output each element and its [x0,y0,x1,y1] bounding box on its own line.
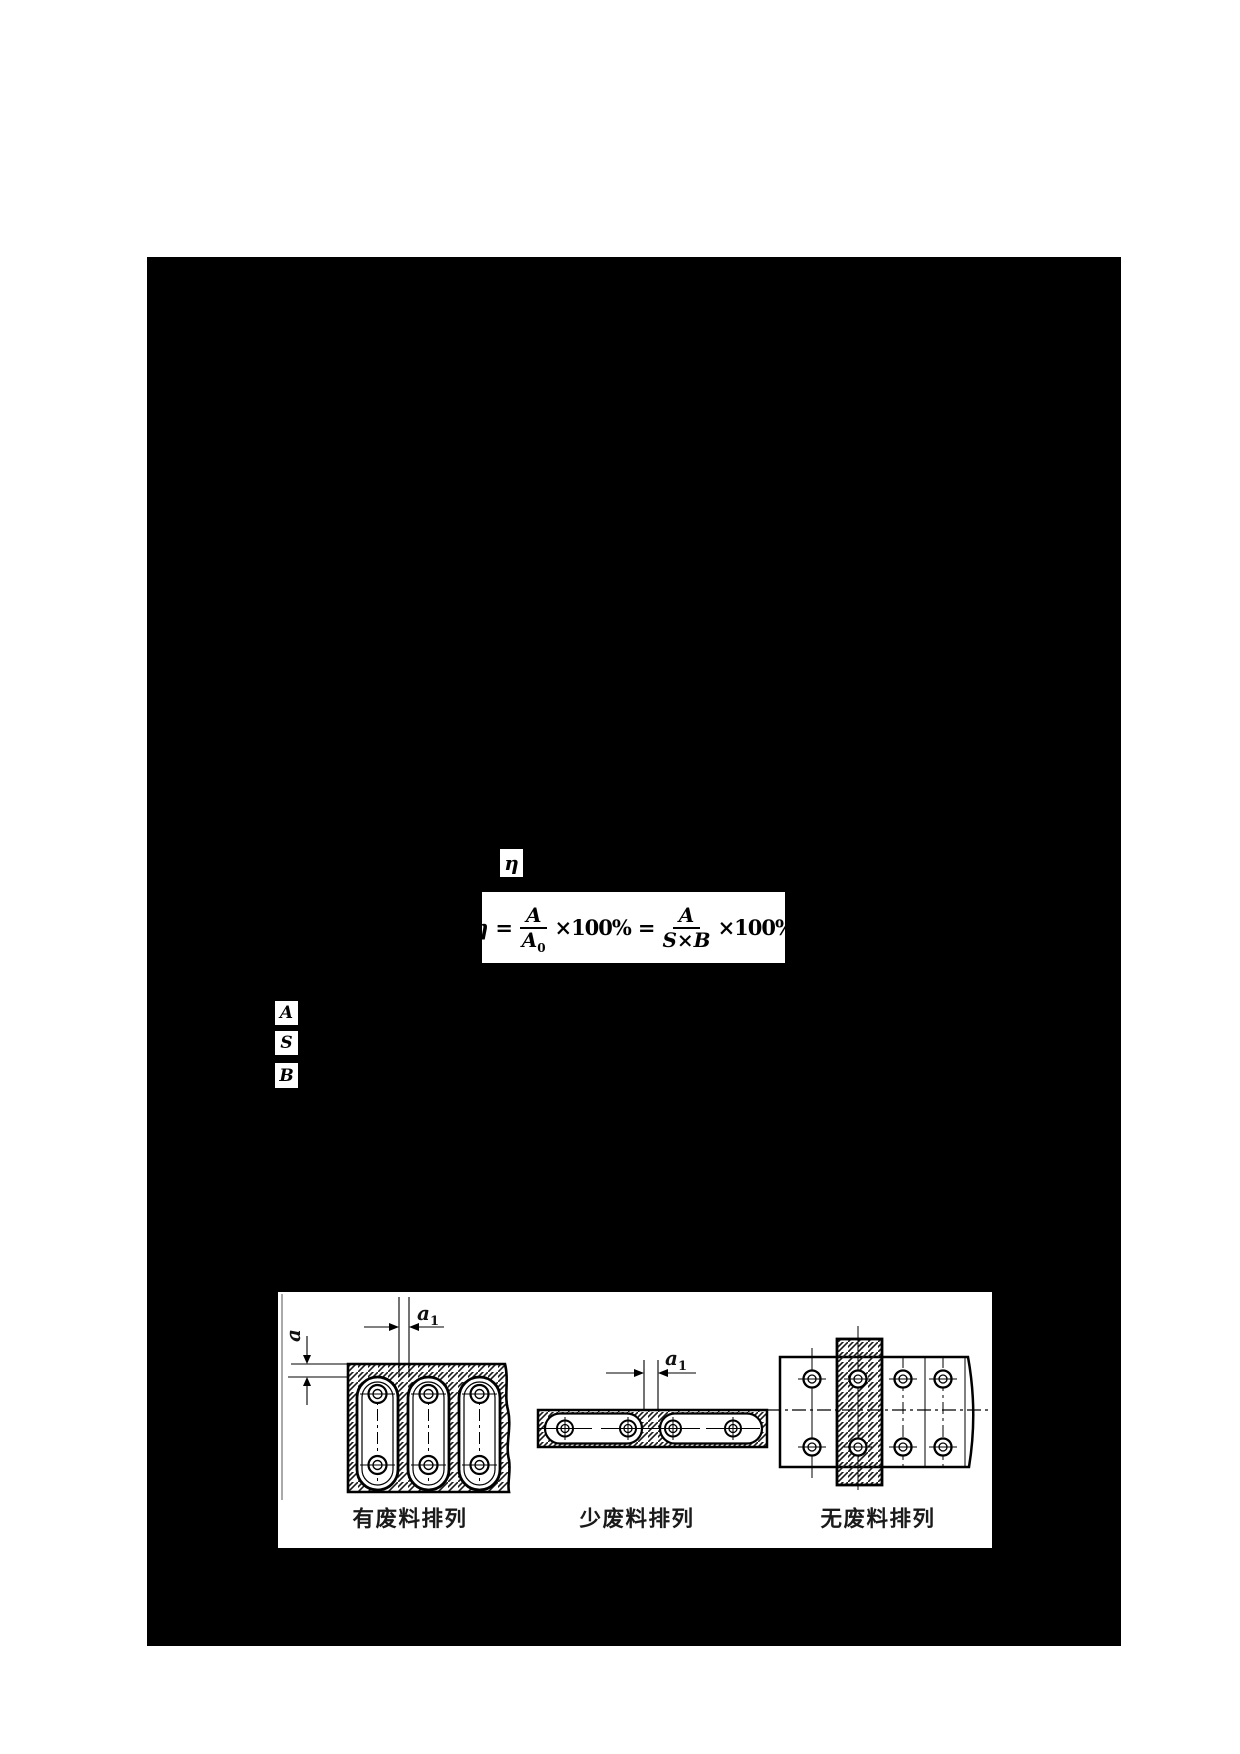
dimension-label-a1-middle: a1 [665,1346,687,1374]
no-scrap-drawing [767,1326,990,1490]
eta-symbol-box: η [500,849,523,877]
fraction-1-numerator: A [520,905,548,929]
formula-equals-1: = [495,915,513,940]
fraction-2-denominator: S×B [662,929,710,951]
formula-eta: η [473,915,488,940]
blanking-band [837,1339,882,1485]
utilization-formula: η = A A0 ×100% = A S×B ×100% [482,892,785,963]
eta-symbol: η [504,851,519,875]
dimension-a: a [281,1329,348,1405]
variable-box-b: B [275,1063,298,1088]
layout-figure: a a1 [278,1292,992,1548]
fraction-1: A A0 [520,905,548,951]
layout-figure-svg: a a1 [278,1292,992,1548]
with-scrap-drawing: a a1 [281,1297,510,1492]
fraction-1-denominator: A0 [522,929,546,951]
formula-times-100-1: ×100% [554,915,630,940]
dimension-label-a1-left: a1 [417,1301,439,1329]
caption-with-scrap: 有废料排列 [352,1506,467,1531]
variable-box-s: S [275,1031,298,1055]
formula-times-100-2: ×100% [718,915,794,940]
fraction-2-numerator: A [673,905,701,929]
caption-low-scrap: 少废料排列 [578,1506,694,1531]
dimension-a1-middle: a1 [606,1346,696,1410]
low-scrap-drawing: a1 [538,1346,767,1447]
document-page: η η = A A0 ×100% = A S×B ×100% A S B [0,0,1240,1754]
fraction-2: A S×B [662,905,710,951]
caption-no-scrap: 无废料排列 [820,1506,935,1531]
formula-equals-2: = [638,915,656,940]
variable-box-a: A [275,1001,298,1025]
dimension-label-a: a [281,1329,305,1342]
